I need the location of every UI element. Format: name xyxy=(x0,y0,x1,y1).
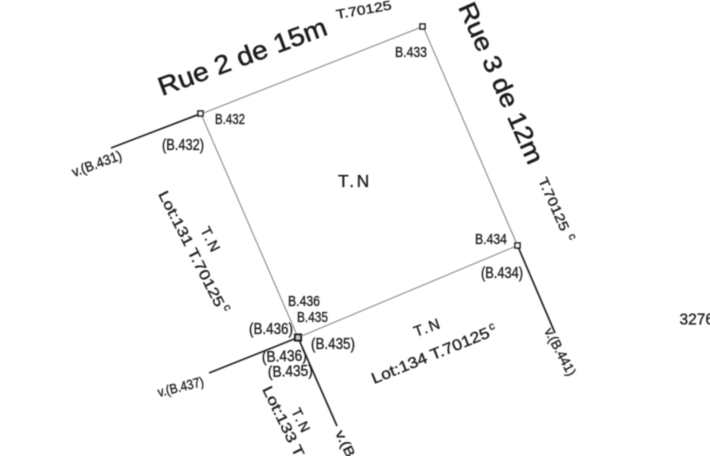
svg-text:B.432: B.432 xyxy=(215,111,245,128)
svg-text:B.433: B.433 xyxy=(395,44,427,61)
svg-text:B.434: B.434 xyxy=(475,231,507,248)
svg-text:B.435: B.435 xyxy=(297,309,328,326)
svg-text:(B.436): (B.436) xyxy=(249,321,293,338)
svg-text:(B.435): (B.435) xyxy=(268,362,314,381)
svg-text:T.N: T.N xyxy=(338,171,372,191)
svg-text:3276: 3276 xyxy=(680,312,710,329)
svg-text:(B.434): (B.434) xyxy=(481,265,523,282)
svg-text:(B.432): (B.432) xyxy=(162,137,204,154)
svg-text:B.436: B.436 xyxy=(288,293,320,310)
svg-text:(B.435): (B.435) xyxy=(311,336,355,353)
